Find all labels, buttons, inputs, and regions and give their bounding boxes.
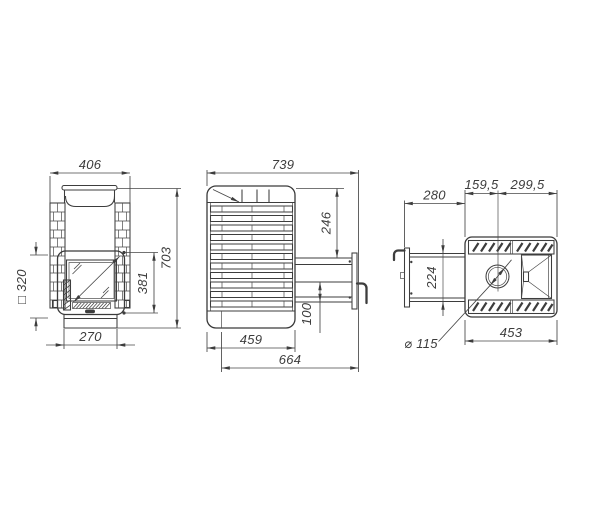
damper-arrow bbox=[213, 190, 239, 203]
dim-label-246: 246 bbox=[319, 211, 334, 235]
fire-door bbox=[53, 251, 130, 315]
front-view: 406 703 381 □ 320 270 bbox=[14, 157, 181, 349]
dim-base-width: 270 bbox=[46, 329, 135, 349]
ash-grate bbox=[73, 303, 111, 314]
dim-label-299-5: 299,5 bbox=[509, 177, 545, 192]
dim-label-664: 664 bbox=[279, 352, 302, 367]
side-view: 739 246 100 459 664 bbox=[207, 157, 367, 372]
mounting-flange-side bbox=[352, 253, 357, 309]
dim-tunnel-bottom-height: 100 bbox=[299, 282, 320, 333]
dim-label-453: 453 bbox=[500, 325, 523, 340]
funnel-opening bbox=[522, 255, 552, 299]
dim-label-159-5: 159,5 bbox=[464, 177, 499, 192]
tunnel-handle-top bbox=[394, 251, 405, 261]
drawing-canvas: 406 703 381 □ 320 270 bbox=[0, 0, 600, 524]
dim-label-381: 381 bbox=[135, 272, 150, 295]
dim-label-100: 100 bbox=[299, 302, 314, 325]
base-pedestal bbox=[64, 315, 117, 329]
dim-tunnel-width: 224 bbox=[424, 239, 443, 316]
firebox-tunnel-side bbox=[295, 253, 367, 309]
dim-label-406: 406 bbox=[79, 157, 102, 172]
hinge-tab-right bbox=[125, 301, 130, 308]
stone-trough-front bbox=[469, 241, 555, 255]
mounting-flange-top bbox=[405, 248, 410, 307]
dim-stone-square: □ 320 bbox=[14, 242, 48, 331]
dim-label-224: 224 bbox=[424, 266, 439, 290]
dim-overall-width: 406 bbox=[50, 157, 130, 203]
dim-label-459: 459 bbox=[240, 332, 263, 347]
dim-label-280: 280 bbox=[422, 188, 446, 203]
stone-trough-back bbox=[469, 300, 555, 314]
dim-label-270: 270 bbox=[78, 329, 102, 344]
door-diagonal-arrow bbox=[74, 257, 120, 303]
glass-hatch bbox=[73, 263, 110, 298]
louver-slats bbox=[211, 206, 293, 307]
dim-body-depth: 459 bbox=[207, 330, 295, 352]
top-plate bbox=[62, 186, 117, 207]
dim-door-height: 381 bbox=[122, 251, 158, 315]
dim-label-703: 703 bbox=[159, 246, 174, 269]
dim-tunnel-length: 280 bbox=[405, 188, 466, 248]
dim-tunnel-top-offset: 246 bbox=[296, 189, 344, 259]
latch-tab bbox=[401, 273, 405, 279]
dim-chimney-diameter: ⌀ 115 bbox=[404, 260, 511, 351]
top-view: 159,5 299,5 280 224 453 ⌀ 115 bbox=[394, 177, 557, 351]
dim-label-dia-115: ⌀ 115 bbox=[404, 336, 438, 351]
dim-label-739: 739 bbox=[272, 157, 295, 172]
dim-label-320: □ 320 bbox=[14, 269, 29, 304]
dim-body-width: 453 bbox=[465, 320, 557, 345]
stone-column-right bbox=[115, 203, 130, 308]
stove-dimension-drawing: 406 703 381 □ 320 270 bbox=[0, 0, 600, 524]
dim-chimney-offsets: 159,5 299,5 bbox=[464, 177, 557, 237]
top-cap bbox=[207, 190, 295, 203]
